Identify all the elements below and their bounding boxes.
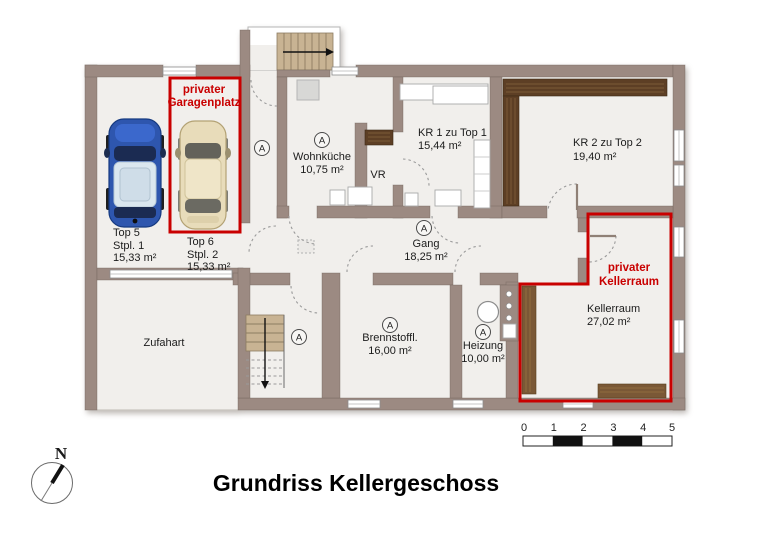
room-wohnkueche-name: Wohnküche bbox=[293, 151, 351, 163]
room-heizung-name: Heizung bbox=[463, 340, 503, 352]
room-kr2-name: KR 2 zu Top 2 bbox=[573, 137, 642, 149]
door-marker-a: A bbox=[480, 328, 487, 339]
room-gang-name: Gang bbox=[413, 238, 440, 250]
door-marker-a: A bbox=[259, 144, 266, 155]
compass: N bbox=[32, 444, 73, 504]
room-zufahart-name: Zufahart bbox=[144, 337, 185, 349]
room-top6-name: Top 6 bbox=[187, 236, 214, 248]
room-kellerraum-name: Kellerraum bbox=[587, 303, 640, 315]
room-top6-sub: Stpl. 2 bbox=[187, 249, 218, 261]
wall-cabinet bbox=[297, 80, 319, 100]
page-title: Grundriss Kellergeschoss bbox=[213, 470, 499, 496]
boiler-tank bbox=[478, 302, 499, 323]
scale-bar-track bbox=[523, 436, 672, 446]
room-top5-name: Top 5 bbox=[113, 227, 140, 239]
scale-tick-3: 3 bbox=[610, 422, 616, 434]
room-wohnkueche-area: 10,75 m² bbox=[300, 164, 344, 176]
door-marker-a: A bbox=[319, 136, 326, 147]
room-vr-name: VR bbox=[370, 169, 385, 181]
basement-floor-plan: A A A A A A Top 5 Stpl. 1 15,33 m² Top 6… bbox=[85, 27, 685, 410]
scale-tick-1: 1 bbox=[551, 422, 557, 434]
room-kr1-name: KR 1 zu Top 1 bbox=[418, 127, 487, 139]
room-top5-area: 15,33 m² bbox=[113, 252, 157, 264]
room-top5-sub: Stpl. 1 bbox=[113, 240, 144, 252]
room-kr2-area: 19,40 m² bbox=[573, 151, 617, 163]
floor-plan-page: A A A A A A Top 5 Stpl. 1 15,33 m² Top 6… bbox=[0, 0, 768, 545]
private-cellar-label-1: privater bbox=[608, 262, 651, 274]
scale-tick-2: 2 bbox=[581, 422, 587, 434]
car-beige bbox=[175, 121, 231, 229]
private-garage-label-1: privater bbox=[183, 84, 226, 96]
door-marker-a: A bbox=[421, 224, 428, 235]
private-cellar-label-2: Kellerraum bbox=[599, 276, 659, 288]
scale-tick-5: 5 bbox=[669, 422, 675, 434]
room-brennstoff-name: Brennstoffl. bbox=[362, 332, 417, 344]
room-kr1-area: 15,44 m² bbox=[418, 140, 462, 152]
room-heizung-area: 10,00 m² bbox=[461, 353, 505, 365]
private-garage-label-2: Garagenplatz bbox=[168, 97, 241, 109]
compass-north-label: N bbox=[55, 444, 68, 463]
scale-bar-segment bbox=[612, 436, 642, 446]
compass-needle-north-half bbox=[52, 465, 63, 483]
room-kellerraum-area: 27,02 m² bbox=[587, 316, 631, 328]
exterior-staircase-up bbox=[248, 27, 340, 70]
door-marker-a: A bbox=[387, 321, 394, 332]
scale-bar-segment bbox=[553, 436, 583, 446]
car-blue bbox=[104, 119, 166, 227]
scale-tick-4: 4 bbox=[640, 422, 646, 434]
scale-tick-0: 0 bbox=[521, 422, 527, 434]
floor-drain bbox=[298, 240, 314, 253]
scale-bar: 0 1 2 3 4 5 bbox=[521, 422, 675, 446]
room-brennstoff-area: 16,00 m² bbox=[368, 345, 412, 357]
room-gang-area: 18,25 m² bbox=[404, 251, 448, 263]
door-marker-a: A bbox=[296, 333, 303, 344]
room-top6-area: 15,33 m² bbox=[187, 261, 231, 273]
